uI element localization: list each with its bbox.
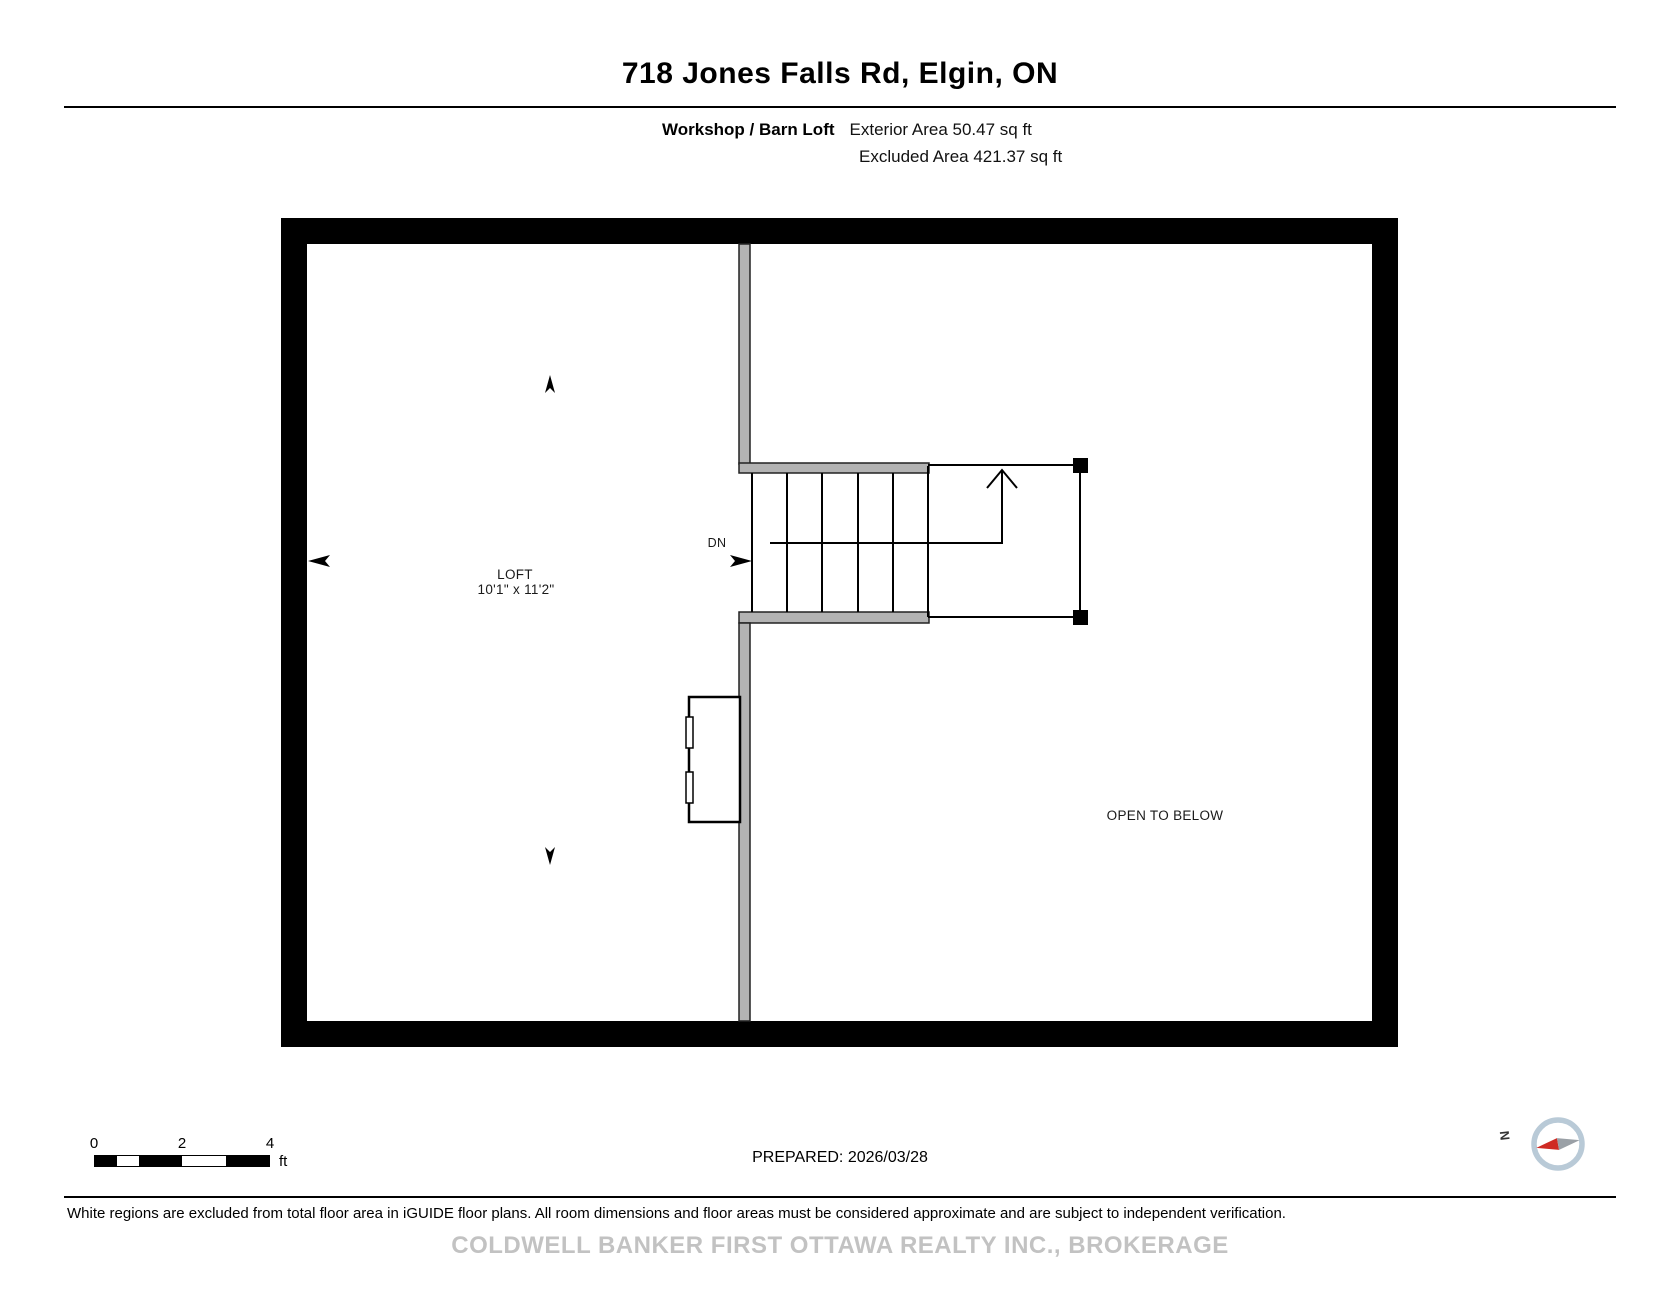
wall-outline — [282, 219, 1398, 1047]
partition-upper — [739, 244, 750, 464]
exterior-walls — [281, 218, 1398, 1047]
arrow-left-icon — [308, 555, 330, 567]
arrow-right-icon — [730, 555, 752, 567]
wall-bottom — [281, 1021, 1398, 1047]
interior-partition-walls — [739, 244, 929, 1021]
floor-plan-svg — [281, 218, 1398, 1047]
floor-plan-drawing — [281, 218, 1398, 1047]
open-to-below-label: OPEN TO BELOW — [1055, 808, 1275, 824]
stair-down-label: DN — [692, 536, 742, 550]
stairwell-opening — [928, 465, 1080, 617]
room-name-loft: LOFT — [435, 567, 595, 583]
cabinet-hinge — [686, 772, 693, 803]
stairwell-bottom-wall — [739, 612, 929, 623]
footer-divider-line — [64, 1196, 1616, 1198]
arrow-down-icon — [545, 847, 555, 865]
disclaimer-text: White regions are excluded from total fl… — [67, 1205, 1286, 1222]
excluded-area-value: Excluded Area 421.37 sq ft — [859, 147, 1062, 167]
direction-path — [770, 470, 1002, 543]
stairwell-top-wall — [739, 463, 929, 473]
room-dimensions-loft: 10'1" x 11'2" — [426, 582, 606, 598]
header-divider-line — [64, 106, 1616, 108]
post-bottom — [1073, 610, 1088, 625]
arrow-up-icon — [545, 375, 555, 393]
compass-north-label: N — [1497, 1130, 1513, 1141]
cabinet-fixture — [686, 697, 740, 822]
floor-label: Workshop / Barn Loft — [662, 120, 835, 140]
exterior-area-value: Exterior Area 50.47 sq ft — [850, 120, 1032, 140]
cabinet-body — [689, 697, 740, 822]
staircase — [752, 466, 928, 617]
wall-top — [281, 218, 1398, 244]
cabinet-hinge — [686, 717, 693, 748]
floor-summary-line1: Workshop / Barn Loft Exterior Area 50.47… — [662, 120, 1032, 140]
floor-plan-page: 718 Jones Falls Rd, Elgin, ON Workshop /… — [0, 0, 1680, 1299]
compass-icon — [1504, 1104, 1604, 1184]
compass — [1504, 1104, 1604, 1184]
wall-left — [281, 218, 307, 1047]
wall-right — [1372, 218, 1398, 1047]
post-top — [1073, 458, 1088, 473]
prepared-date: PREPARED: 2026/03/28 — [0, 1149, 1680, 1167]
page-title: 718 Jones Falls Rd, Elgin, ON — [0, 57, 1680, 91]
brokerage-watermark: COLDWELL BANKER FIRST OTTAWA REALTY INC.… — [0, 1232, 1680, 1260]
